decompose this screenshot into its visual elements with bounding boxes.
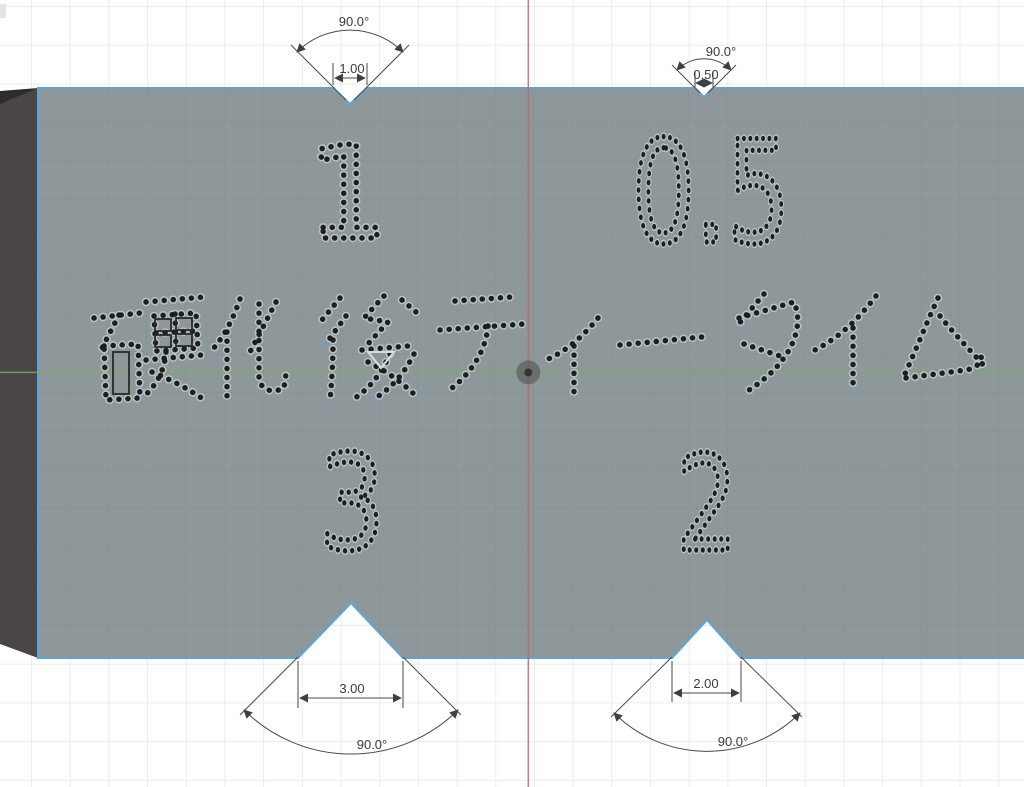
dimension-top-right-notch[interactable]: 90.0° 0.50 — [672, 44, 736, 93]
sketch-canvas[interactable]: 1 1 1 0.5 0.5 0.5 3 3 3 2 2 2 — [0, 0, 1024, 787]
engraved-number-bottom-right[interactable]: 2 2 2 — [677, 428, 737, 582]
dim-angle-value[interactable]: 90.0° — [357, 737, 388, 752]
dim-width-value[interactable]: 0.50 — [693, 67, 718, 82]
dim-extension-line — [611, 657, 672, 717]
dim-width-value[interactable]: 3.00 — [339, 681, 364, 696]
dim-angle-arc — [244, 710, 458, 754]
dim-extension-line — [240, 657, 298, 715]
dim-width-value[interactable]: 1.00 — [339, 61, 364, 76]
dimension-bottom-right-notch[interactable]: 2.00 90.0° — [611, 657, 802, 751]
engraved-number-top-right[interactable]: 0.5 0.5 0.5 — [632, 110, 790, 276]
number-points: 2 — [677, 428, 737, 582]
dim-width-value[interactable]: 2.00 — [693, 676, 718, 691]
number-points: 1 — [307, 120, 388, 269]
dim-angle-arc — [297, 30, 403, 52]
dimension-bottom-left-notch[interactable]: 3.00 90.0° — [240, 657, 461, 754]
dim-angle-value[interactable]: 90.0° — [706, 44, 737, 59]
origin-center-dot — [524, 368, 532, 376]
dim-angle-value[interactable]: 90.0° — [718, 734, 749, 749]
dim-angle-arc — [614, 713, 800, 751]
engraved-number-top-left[interactable]: 1 1 1 — [307, 120, 388, 269]
engraved-number-bottom-left[interactable]: 3 3 3 — [319, 426, 385, 580]
number-points: 0.5 — [632, 110, 790, 276]
ui-fragment — [0, 4, 6, 18]
dim-extension-line — [741, 657, 802, 717]
dim-extension-line — [403, 657, 461, 715]
viewport[interactable]: 1 1 1 0.5 0.5 0.5 3 3 3 2 2 2 — [0, 0, 1024, 787]
dim-angle-value[interactable]: 90.0° — [339, 14, 370, 29]
origin-point[interactable] — [516, 360, 540, 384]
number-points: 3 — [319, 426, 385, 580]
